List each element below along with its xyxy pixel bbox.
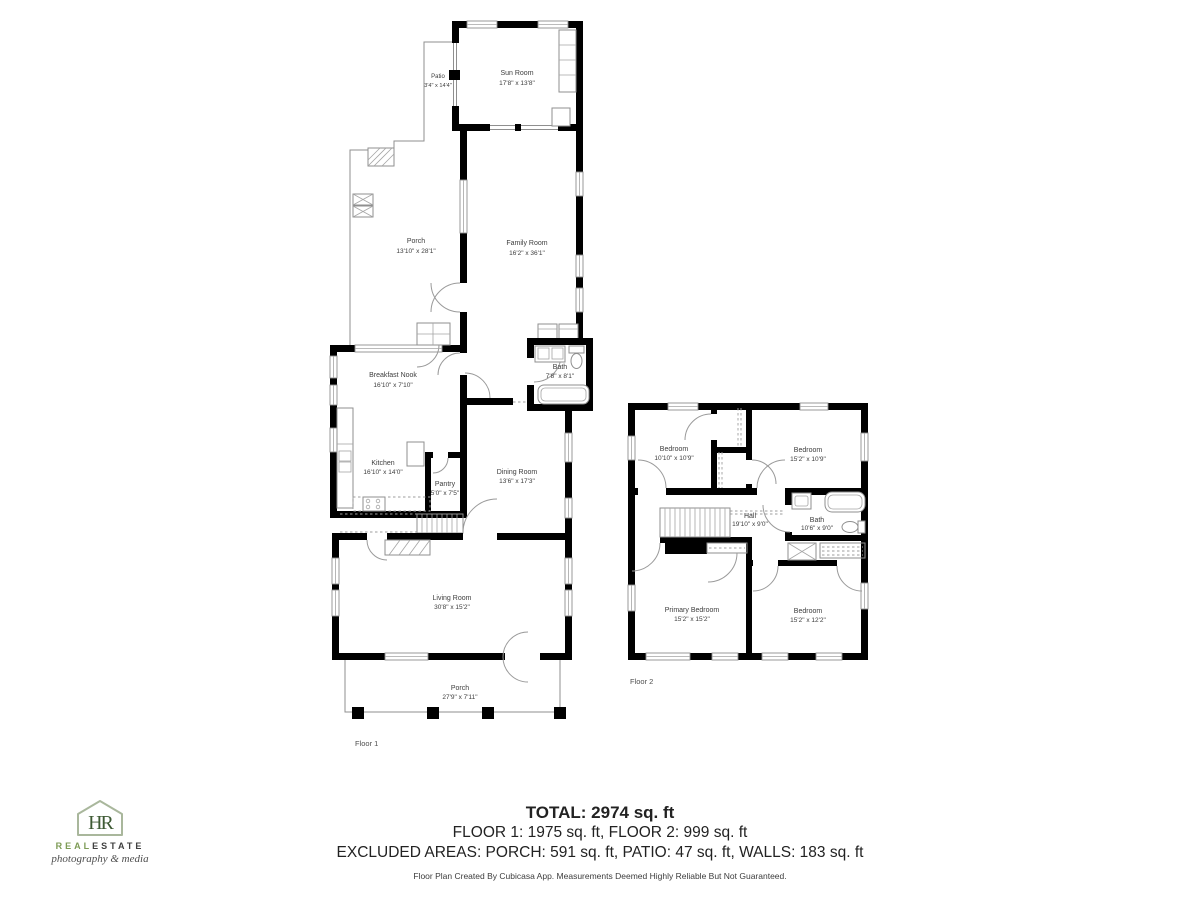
porch-pillar <box>554 707 566 719</box>
breakfast-nook-label: Breakfast Nook <box>369 372 417 379</box>
porch-unit-icons <box>353 194 373 217</box>
grill-icon <box>368 148 394 166</box>
floor2-label: Floor 2 <box>630 677 653 686</box>
kitchen-label: Kitchen <box>371 460 394 467</box>
bathtub-icon <box>825 492 865 512</box>
nook-cabinet-icon <box>417 323 450 367</box>
bath2-label: Bath <box>810 517 825 524</box>
family-room-walls <box>431 131 583 345</box>
porch-pillar <box>352 707 364 719</box>
pantry-dims: 5'0" x 7'5" <box>431 490 460 497</box>
sun-room-label: Sun Room <box>500 70 533 77</box>
hall-dims: 19'10" x 9'0" <box>732 521 768 528</box>
porch-upper-label: Porch <box>407 238 425 245</box>
sun-room-dims: 17'8" x 13'8" <box>499 80 535 87</box>
sun-room-shelf-icon <box>552 30 576 126</box>
bedroom-tl-dims: 10'10" x 10'9" <box>654 455 694 462</box>
living-room-label: Living Room <box>433 595 472 602</box>
breakfast-nook-dims: 16'10" x 7'10" <box>373 382 413 389</box>
floor2-closets <box>788 543 865 560</box>
area-summary: TOTAL: 2974 sq. ft FLOOR 1: 1975 sq. ft,… <box>0 803 1200 881</box>
bedroom-tl-label: Bedroom <box>660 446 689 453</box>
porch-pillar <box>427 707 439 719</box>
floor2-middle-walls <box>628 460 868 660</box>
bedroom-br-label: Bedroom <box>794 608 823 615</box>
primary-bedroom-label: Primary Bedroom <box>665 607 720 614</box>
bath2-dims: 10'6" x 9'0" <box>801 525 834 532</box>
disclaimer: Floor Plan Created By Cubicasa App. Meas… <box>0 871 1200 881</box>
dining-room-dims: 13'6" x 17'3" <box>499 478 535 485</box>
dining-room-label: Dining Room <box>497 469 538 476</box>
porch-pillar <box>482 707 494 719</box>
bedroom-tr-dims: 15'2" x 10'9" <box>790 456 826 463</box>
floor1-plan: Patio 3'4" x 14'4" Sun Room 17'8" x 13'8… <box>330 21 593 748</box>
total-area: TOTAL: 2974 sq. ft <box>0 803 1200 823</box>
pantry-label: Pantry <box>435 481 456 488</box>
floor1-label: Floor 1 <box>355 739 378 748</box>
porch-lower-dims: 27'9" x 7'11" <box>442 694 478 701</box>
excluded-areas: EXCLUDED AREAS: PORCH: 591 sq. ft, PATIO… <box>0 843 1200 863</box>
bedroom-br-dims: 15'2" x 12'2" <box>790 617 826 624</box>
floor-plan-drawing: Patio 3'4" x 14'4" Sun Room 17'8" x 13'8… <box>0 0 1200 900</box>
floor2-plan: Bedroom 10'10" x 10'9" Bedroom 15'2" x 1… <box>628 403 868 686</box>
bathtub-icon <box>538 385 589 404</box>
patio-dims: 3'4" x 14'4" <box>424 83 452 89</box>
porch-upper-dims: 13'10" x 28'1" <box>396 248 436 255</box>
hall-label: Hall <box>744 513 757 520</box>
closet-shelf <box>820 543 865 558</box>
bedroom-tr-label: Bedroom <box>794 447 823 454</box>
floor-areas: FLOOR 1: 1975 sq. ft, FLOOR 2: 999 sq. f… <box>0 823 1200 843</box>
living-room-dims: 30'8" x 15'2" <box>434 604 470 611</box>
chimney-block <box>665 543 707 554</box>
family-room-dims: 16'2" x 36'1" <box>509 250 545 257</box>
fireplace-icon <box>385 540 430 555</box>
toilet-icon <box>842 521 865 533</box>
toilet-icon <box>569 346 584 369</box>
family-room-label: Family Room <box>506 240 547 247</box>
sink-icon <box>792 493 811 509</box>
porch-lower-label: Porch <box>451 685 469 692</box>
patio-label: Patio <box>431 74 445 80</box>
bath1-label: Bath <box>553 364 568 371</box>
stove-icon <box>363 497 385 511</box>
bath1-dims: 7'8" x 8'1" <box>546 373 575 380</box>
kitchen-dims: 16'10" x 14'0" <box>363 469 403 476</box>
primary-bedroom-dims: 15'2" x 15'2" <box>674 616 710 623</box>
floor2-closet-column <box>685 403 776 492</box>
